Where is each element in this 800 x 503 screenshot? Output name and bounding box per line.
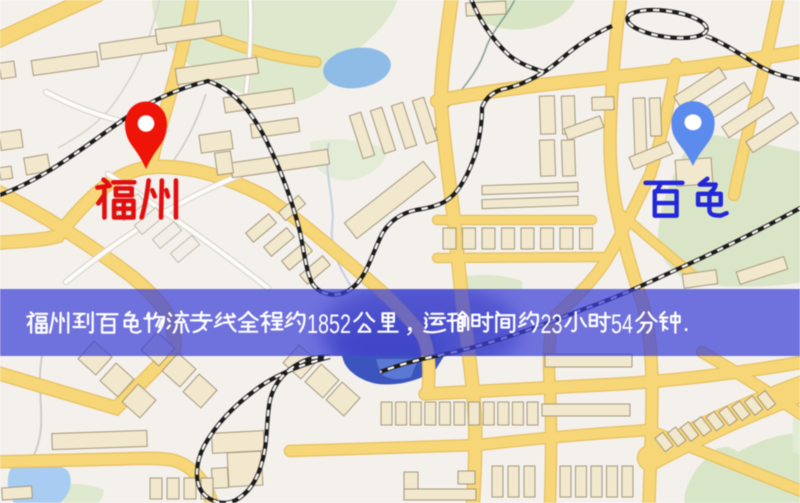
- svg-text:23: 23: [541, 309, 563, 339]
- svg-text:1852: 1852: [307, 309, 351, 339]
- svg-text:.: .: [683, 307, 690, 337]
- svg-text:54: 54: [611, 309, 633, 339]
